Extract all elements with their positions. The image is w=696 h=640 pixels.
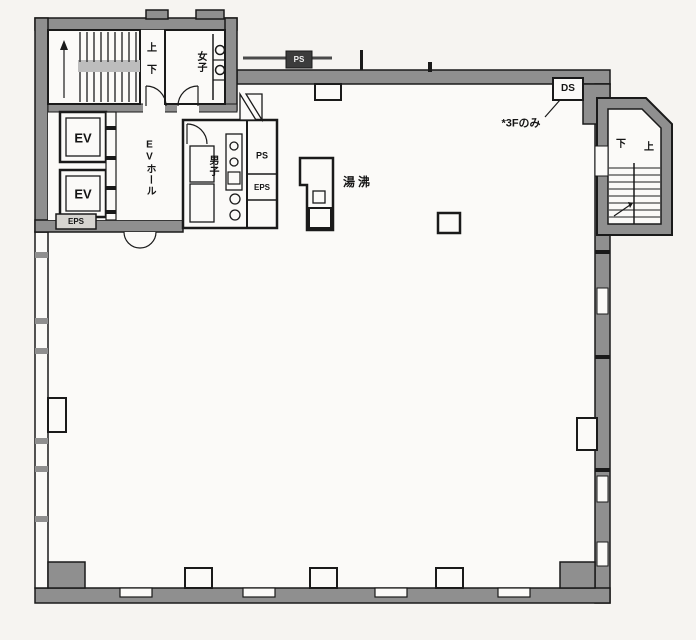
elevator-2-label: EV [74, 188, 91, 201]
toilet-fixture [216, 66, 225, 75]
top-wall-pilaster [315, 84, 341, 100]
ps-shaft-label: PS [256, 152, 268, 161]
urinal-fixture [230, 210, 240, 220]
toilet-fixture [230, 142, 238, 150]
right-stair-up-label: 上 [644, 143, 654, 153]
left-stair-up-label: 上 [147, 44, 157, 54]
annotation-3f-label: *3Fのみ [501, 119, 540, 130]
mens-room-label: 男子 [207, 155, 217, 177]
floor-plan-page: 上 下 女子 EV EV EVホール EPS 男子 PS EPS 湯沸 PS D… [0, 0, 696, 640]
left-stairwell [48, 30, 140, 104]
right-stairwell [595, 98, 672, 235]
floor-plan-drawing [0, 0, 696, 640]
right-stair-door [595, 146, 608, 176]
ds-box-label: DS [561, 84, 575, 94]
toilet-fixture [216, 46, 225, 55]
left-wall [35, 232, 48, 588]
toilet-fixture [230, 158, 238, 166]
kitchenette-label: 湯沸 [343, 176, 373, 188]
elevator-1-label: EV [74, 132, 91, 145]
left-stair-down-label: 下 [147, 66, 157, 76]
ev-hall-wall [106, 112, 116, 220]
top-service-line [243, 51, 332, 68]
stall [190, 184, 214, 222]
left-wall-notch [48, 398, 66, 432]
mens-block [183, 120, 277, 228]
column [438, 213, 460, 233]
bottom-right-pier [560, 562, 595, 588]
right-stair-down-label: 下 [616, 140, 626, 150]
eps-shaft-label: EPS [254, 184, 270, 192]
ps-top-label: PS [294, 56, 305, 64]
top-wall-ticks [360, 50, 432, 72]
right-wall-notch [577, 418, 597, 450]
eps-box-left-label: EPS [68, 218, 84, 226]
ev-hall-label: EVホール [144, 140, 154, 197]
womens-room-label: 女子 [195, 51, 205, 73]
bottom-left-pier [48, 562, 85, 588]
urinal-fixture [230, 194, 240, 204]
